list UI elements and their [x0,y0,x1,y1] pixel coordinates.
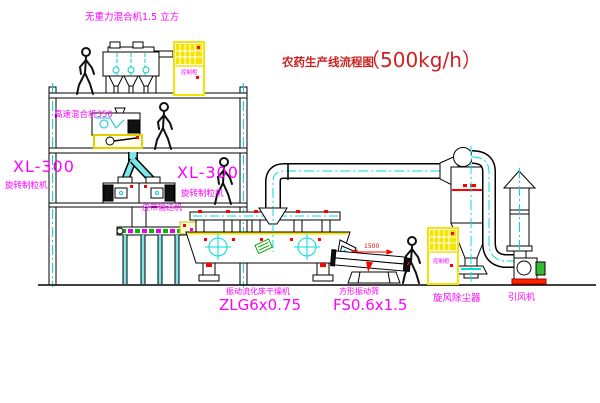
label-granulator-left-model: XL-300 [13,159,75,175]
label-granulator-right-name: 旋转制粒机 [181,190,224,199]
y-chute [125,152,152,180]
label-dryer-name: 振动流化床干燥机 [226,288,290,296]
square-vibrating-sieve [330,246,410,283]
worker-figure [155,103,172,149]
label-granulator-right-model: XL-300 [177,165,239,181]
label-fan: 引风机 [508,294,535,303]
control-cabinet-lower [428,228,458,284]
diagram-title-capacity: （500kg/h） [360,50,482,70]
label-cabinet-lower: 控制柜 [433,260,450,266]
label-belt-conveyor: 皮带输送机 [142,204,182,212]
control-cabinet-upper [174,42,204,95]
gravity-free-mixer [103,42,173,93]
label-high-speed-mixer: 高速混合机350 [54,111,113,120]
belt-conveyor [117,222,198,284]
label-dryer-model: ZLG6x0.75 [219,298,301,313]
dimension-sieve-length: 1500 [364,244,379,250]
label-gravity-mixer: 无重力混合机1.5 立方 [85,13,179,23]
process-flow-diagram: 农药生产线流程图 （500kg/h） 无重力混合机1.5 立方 高速混合机350… [0,0,600,403]
label-cabinet-upper: 控制柜 [181,71,198,77]
rotary-granulator-right [139,177,175,203]
label-sieve-model: FS0.6x1.5 [333,298,407,313]
label-granulator-left-name: 旋转制粒机 [5,182,48,191]
induced-draft-fan [512,251,546,284]
worker-figure [77,48,94,94]
label-cyclone: 旋风除尘器 [433,294,481,304]
rotary-granulator-left [103,177,139,203]
label-sieve-name: 方形振动筛 [339,288,379,296]
